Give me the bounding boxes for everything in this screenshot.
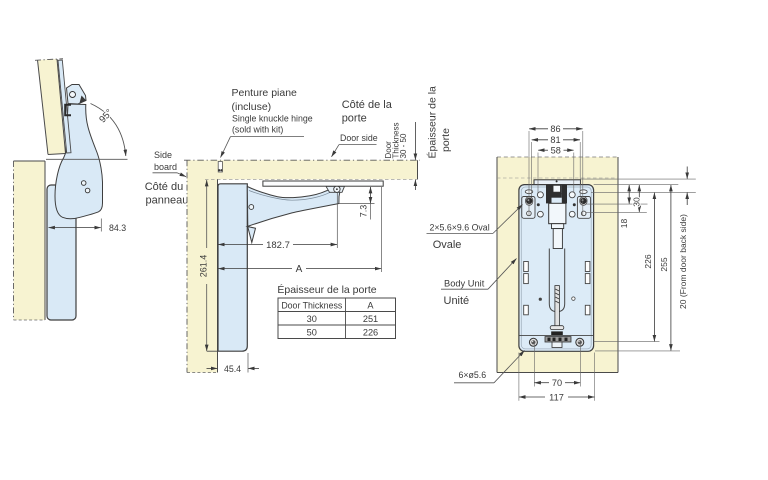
svg-text:board: board [154,162,177,172]
svg-text:30: 30 [307,314,317,324]
svg-text:6×ø5.6: 6×ø5.6 [459,370,487,380]
svg-text:261.4: 261.4 [199,255,209,278]
svg-text:251: 251 [363,314,378,324]
svg-text:Côté du: Côté du [145,181,184,193]
svg-text:84.3: 84.3 [109,223,126,233]
svg-text:Door side: Door side [340,133,378,143]
svg-text:117: 117 [549,392,564,402]
svg-text:(incluse): (incluse) [232,101,272,113]
svg-text:porte: porte [440,128,452,152]
svg-text:Épaisseur de la: Épaisseur de la [426,86,439,159]
svg-text:58: 58 [551,145,561,155]
svg-text:50: 50 [307,327,317,337]
svg-text:20 (From door back side): 20 (From door back side) [678,214,688,309]
svg-text:81: 81 [550,135,560,145]
svg-text:70: 70 [552,378,562,388]
svg-text:Côté de la: Côté de la [342,99,393,111]
svg-text:Penture piane: Penture piane [232,87,298,99]
svg-text:Unité: Unité [444,295,470,307]
svg-text:30: 30 [632,197,642,207]
svg-text:Épaisseur de la porte: Épaisseur de la porte [277,283,376,296]
svg-text:(sold with kit): (sold with kit) [232,125,283,135]
svg-text:86: 86 [550,124,560,134]
svg-text:45.4: 45.4 [224,364,241,374]
svg-text:panneau: panneau [146,195,189,207]
svg-text:porte: porte [342,113,367,125]
svg-text:226: 226 [643,254,653,268]
svg-text:2×5.6×9.6 Oval: 2×5.6×9.6 Oval [430,223,490,233]
svg-text:18: 18 [619,219,629,229]
svg-text:Door Thickness: Door Thickness [281,300,343,310]
svg-text:226: 226 [363,327,378,337]
svg-text:Single knuckle hinge: Single knuckle hinge [232,114,313,124]
svg-text:A: A [296,264,303,275]
svg-text:255: 255 [659,257,669,271]
svg-text:7.3: 7.3 [359,205,369,218]
svg-text:30 - 50: 30 - 50 [399,133,408,158]
svg-text:A: A [367,301,374,311]
svg-text:Body Unit: Body Unit [444,279,485,289]
svg-text:Side: Side [154,150,172,160]
svg-text:182.7: 182.7 [266,240,290,251]
svg-text:Ovale: Ovale [433,239,462,251]
